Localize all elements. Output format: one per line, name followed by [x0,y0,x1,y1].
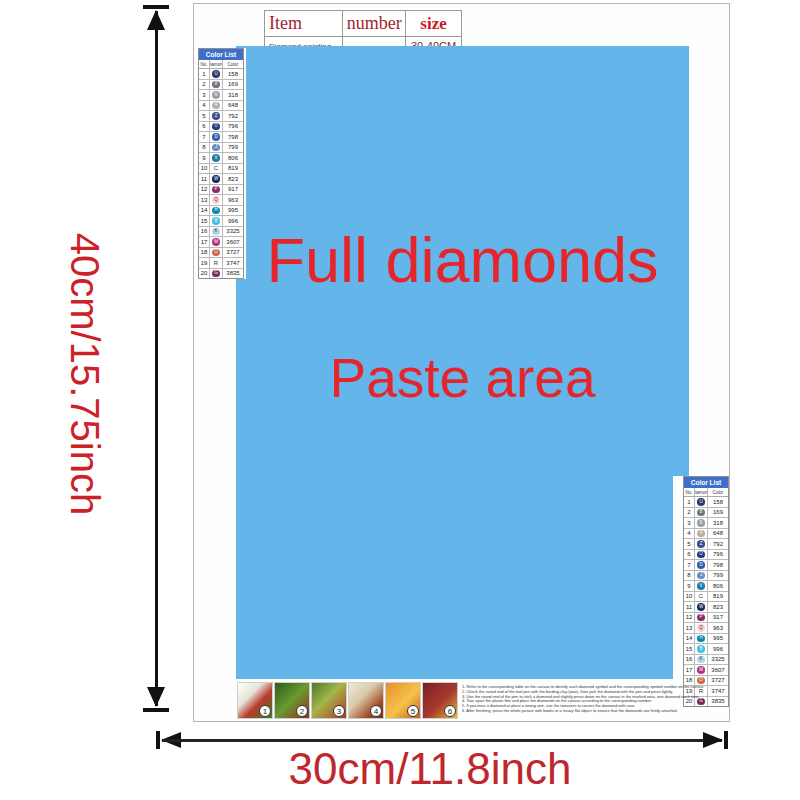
diamond-symbol-icon: W [212,175,220,183]
arrow-cap-right [724,731,728,749]
color-list-row: 12P917 [199,185,243,196]
step-number-badge: 2 [296,705,308,717]
color-list-column-headers: No. Diamond Color [199,60,243,69]
diamond-symbol-icon: K [212,228,220,236]
diamond-symbol-icon: C [212,165,220,173]
diamond-symbol-icon: J [697,572,705,580]
instruction-line: 6. After finishing, press the whole pict… [462,709,722,714]
diamond-symbol-icon: Q [697,624,705,632]
diamond-symbol-icon: 8 [697,509,705,517]
color-list-row: 9V806 [199,153,243,164]
diamond-symbol-icon: V [212,154,220,162]
diamond-symbol-icon: O [212,123,220,131]
step-thumbnail: 5 [385,682,421,719]
diamond-symbol-icon: B [697,645,705,653]
diamond-symbol-icon: W [697,603,705,611]
color-list-row: 44648 [199,101,243,112]
diamond-symbol-icon: P [212,186,220,194]
color-list-right: Color List No. Diamond Color 1U158281693… [673,476,729,707]
diamond-symbol-icon: 8 [212,81,220,89]
color-list-row: 11W823 [684,602,728,613]
color-list-row: 13Q963 [199,195,243,206]
diamond-symbol-icon: B [212,217,220,225]
step-number-badge: 6 [444,705,456,717]
diamond-symbol-icon: D [212,133,220,141]
color-list-row: 36318 [684,518,728,529]
color-list-title: Color List [684,477,728,488]
step-number-badge: 1 [259,705,271,717]
col-color: Color [223,60,243,68]
color-list-row: 1U158 [199,69,243,80]
diamond-symbol-icon: J [212,144,220,152]
color-list-row: 28169 [684,508,728,519]
diamond-symbol-icon: 4 [697,530,705,538]
col-diamond: Diamond [695,488,708,496]
color-list-row: 12P917 [684,613,728,624]
arrow-cap-left [156,731,160,749]
color-list-row: 36318 [199,90,243,101]
step-thumbnail: 2 [274,682,310,719]
size-header: size [406,11,461,36]
diamond-symbol-icon: P [697,614,705,622]
step-number-badge: 5 [407,705,419,717]
step-thumbnails: 123456 [237,682,459,719]
color-list-row: 13Q963 [684,623,728,634]
arrow-line-horizontal [162,739,722,742]
color-list-row: 16K3325 [199,227,243,238]
diamond-symbol-icon: Z [212,112,220,120]
instruction-text-block: 1. Refer to the corresponding table on t… [462,685,722,714]
item-header: Item [265,11,343,36]
diamond-symbol-icon: Z [697,540,705,548]
diamond-symbol-icon: H [212,207,220,215]
width-dimension-label: 30cm/11.8inch [289,744,572,794]
color-list-row: 6O796 [684,550,728,561]
color-list-row: 1U158 [684,497,728,508]
arrowhead-right-icon [703,732,723,748]
arrow-cap-bottom [143,708,169,712]
color-list-row: 20G3835 [199,269,243,279]
color-list-row: 15B996 [684,644,728,655]
color-list-row: 18O3727 [199,248,243,259]
diamond-symbol-icon: K [697,656,705,664]
color-list-row: 8J799 [684,571,728,582]
diamond-symbol-icon: 6 [697,519,705,527]
color-list-row: 9V806 [684,581,728,592]
canvas-sheet: Item number size Diamond painting 30-40C… [193,3,730,722]
color-list-row: 7D798 [684,560,728,571]
color-list-row: 5Z792 [199,111,243,122]
diamond-symbol-icon: G [212,270,220,278]
color-list-row: 17M3607 [199,237,243,248]
paste-area: Full diamonds Paste area [236,46,689,679]
height-dimension-arrow [143,5,169,712]
color-list-rows: 1U1582816936318446485Z7926O7967D7988J799… [684,497,728,706]
diamond-symbol-icon: O [697,677,705,685]
color-list-row: 5Z792 [684,539,728,550]
diamond-symbol-icon: V [697,582,705,590]
color-list-left: Color List No. Diamond Color 1U158281693… [198,48,246,279]
color-list-row: 14H995 [684,634,728,645]
col-color: Color [708,488,728,496]
arrow-line-vertical [155,11,158,706]
diamond-symbol-icon: D [697,561,705,569]
step-number-badge: 4 [370,705,382,717]
color-list-row: 16K3325 [684,655,728,666]
step-thumbnail: 6 [422,682,458,719]
color-list-row: 14H995 [199,206,243,217]
step-thumbnail: 3 [311,682,347,719]
col-no: No. [684,488,695,496]
diamond-symbol-icon: 4 [212,102,220,110]
step-thumbnail: 1 [237,682,273,719]
color-list-row: 28169 [199,80,243,91]
color-list-row: 8J799 [199,143,243,154]
color-list-rows: 1U1582816936318446485Z7926O7967D7988J799… [199,69,243,278]
diamond-symbol-icon: U [212,70,220,78]
color-list-row: 6O796 [199,122,243,133]
paste-area-subtitle: Paste area [236,346,689,410]
step-number-badge: 3 [333,705,345,717]
diamond-symbol-icon: M [697,666,705,674]
height-dimension-label: 40cm/15.75inch [62,233,107,515]
diamond-symbol-icon: 6 [212,91,220,99]
paste-area-title: Full diamonds [236,224,689,296]
diamond-symbol-icon: U [697,498,705,506]
diamond-symbol-icon: O [697,551,705,559]
color-list-row: 15B996 [199,216,243,227]
color-list-row: 10C819 [684,592,728,603]
col-diamond: Diamond [210,60,223,68]
arrow-cap-top [143,5,169,9]
diamond-symbol-icon: Q [212,196,220,204]
color-list-row: 11W823 [199,174,243,185]
diamond-symbol-icon: C [697,593,705,601]
col-no: No. [199,60,210,68]
color-list-row: 44648 [684,529,728,540]
step-thumbnail: 4 [348,682,384,719]
color-list-column-headers: No. Diamond Color [684,488,728,497]
color-list-title: Color List [199,49,243,60]
color-list-row: 10C819 [199,164,243,175]
arrowhead-down-icon [147,687,165,707]
diamond-symbol-icon: M [212,238,220,246]
color-list-row: 19R3747 [199,258,243,269]
diamond-symbol-icon: R [212,259,220,267]
diamond-symbol-icon: O [212,249,220,257]
color-list-row: 17M3607 [684,665,728,676]
number-header: number [343,11,406,36]
color-list-row: 7D798 [199,132,243,143]
diamond-symbol-icon: H [697,635,705,643]
item-table-header-row: Item number size [265,11,461,37]
